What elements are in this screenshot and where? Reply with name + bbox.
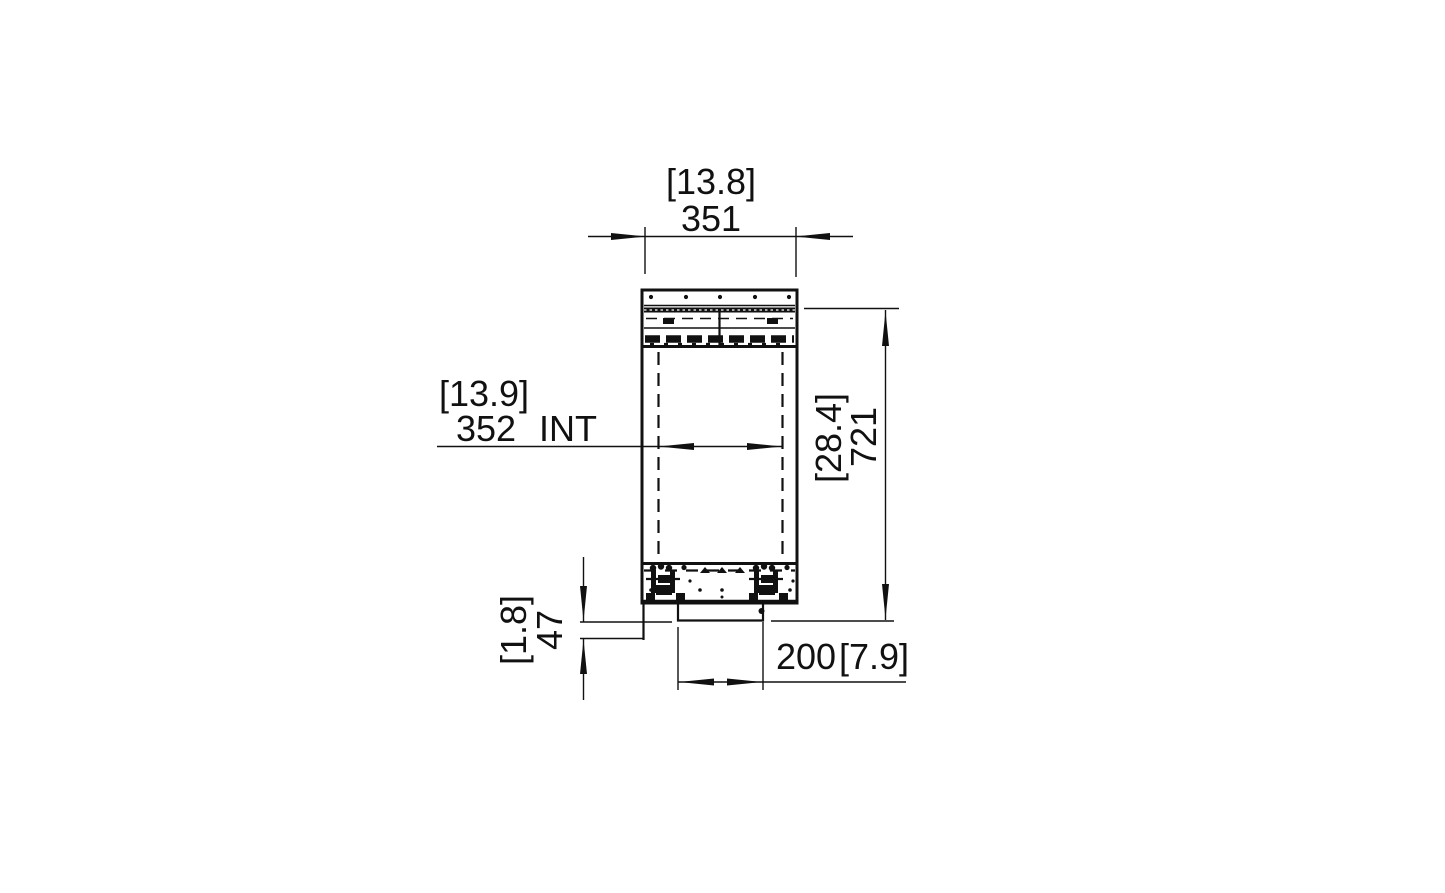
dim-top-width: [13.8] 351 [588,161,853,277]
dim-bottom-offset-imperial: [1.8] [493,595,534,665]
dim-internal-width: [13.9] 352 INT [437,373,782,450]
technical-drawing: [13.8] 351 [13.9] 352 INT [28.4] 721 [1.… [0,0,1445,893]
dim-internal-width-suffix: INT [539,408,597,449]
bottom-burner-assembly [643,563,796,602]
dim-bottom-width-metric: 200 [776,636,836,677]
screw-holes-top [649,295,791,299]
dim-overall-height: [28.4] 721 [771,309,899,622]
dim-bottom-width-imperial: [7.9] [839,636,909,677]
dim-bottom-offset: [1.8] 47 [493,557,672,700]
dim-overall-height-metric: 721 [843,407,884,467]
dim-bottom-offset-metric: 47 [529,610,570,650]
interior-dashed-lines [659,352,783,560]
firebox-body [642,290,797,640]
dim-top-width-metric: 351 [681,198,741,239]
bottom-duct [678,604,765,621]
dim-internal-width-metric: 352 [456,408,516,449]
dim-top-width-imperial: [13.8] [666,161,756,202]
top-burner-assembly [643,295,796,347]
dim-bottom-width: 200 [7.9] [678,622,909,690]
